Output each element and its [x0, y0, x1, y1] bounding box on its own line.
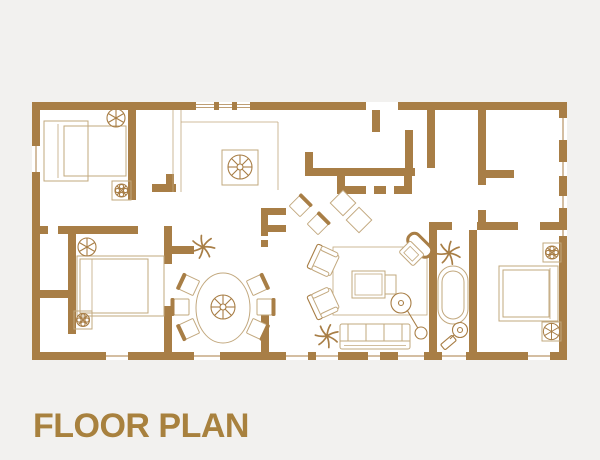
coffee-table — [352, 271, 396, 298]
page-title: FLOOR PLAN — [33, 407, 249, 445]
floor-plan-page: FLOOR PLAN — [0, 0, 600, 460]
floor-plan-canvas: FLOOR PLAN — [0, 0, 600, 460]
chair-icon — [171, 298, 190, 316]
chair-icon — [257, 298, 276, 316]
dining-table — [196, 273, 250, 343]
sofa — [340, 324, 410, 349]
